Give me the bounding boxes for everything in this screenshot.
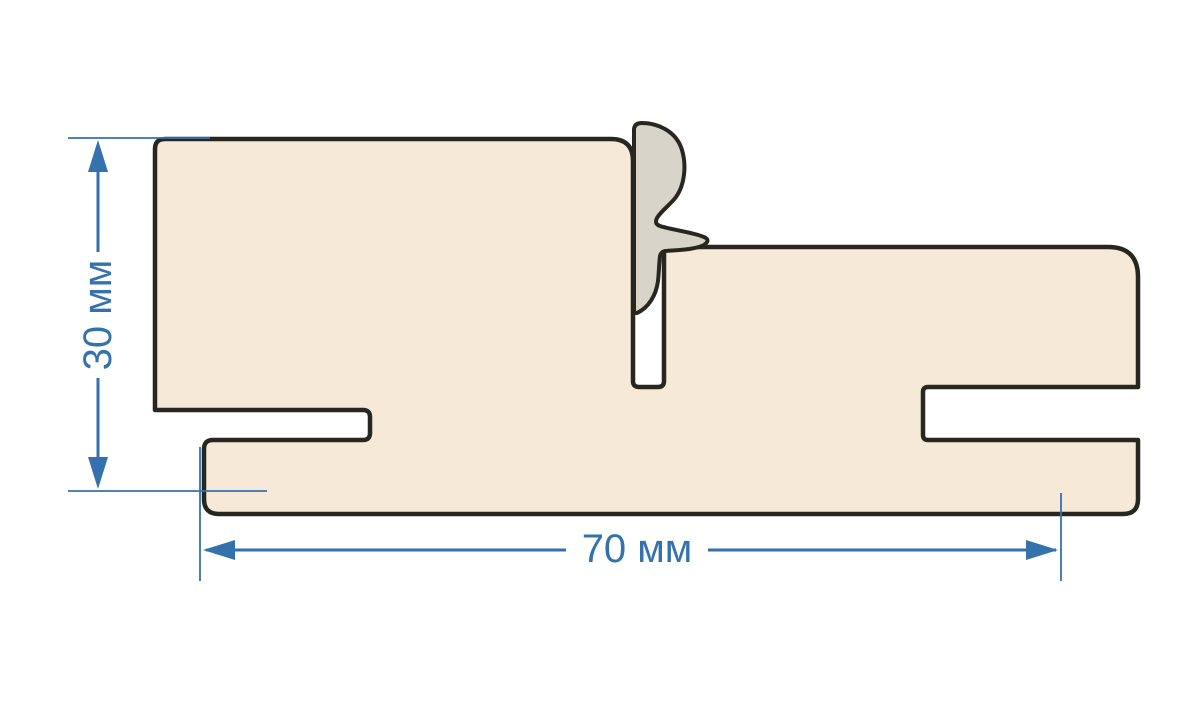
arrow-left-icon (203, 540, 235, 560)
width-dimension-label: 70 мм (582, 527, 693, 571)
height-dimension-label: 30 мм (76, 260, 120, 371)
arrow-right-icon (1026, 540, 1058, 560)
arrow-down-icon (88, 457, 108, 489)
arrow-up-icon (88, 140, 108, 172)
technical-drawing-canvas: 30 мм 70 мм (0, 0, 1184, 712)
door-frame-profile-diagram: 30 мм 70 мм (0, 0, 1184, 712)
